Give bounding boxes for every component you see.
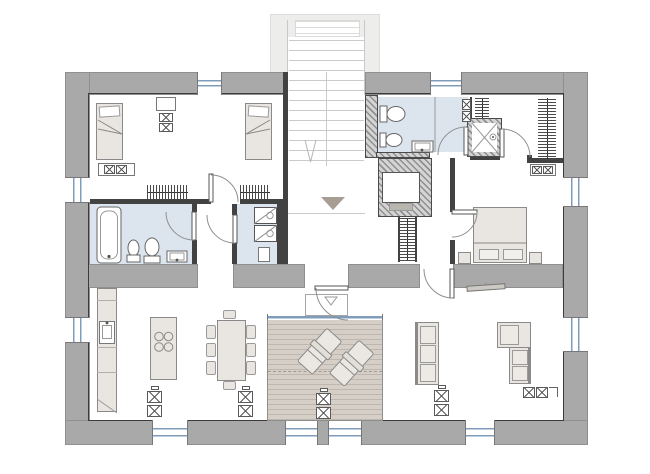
side-bracket [549, 387, 558, 397]
plant-stand-icon [434, 390, 449, 402]
dining-chair [246, 325, 256, 339]
partition-bath-east-lower [192, 240, 197, 264]
dining-table [217, 320, 246, 381]
kitchen-counter [97, 288, 117, 412]
pillow [503, 249, 523, 260]
window-right-living [563, 317, 588, 352]
bathroom-floor [90, 204, 192, 264]
wardrobe-rail-bedroom-left [147, 185, 188, 199]
exterior-wall-right [563, 72, 588, 445]
window-top-bathroom [430, 72, 462, 95]
exterior-wall-bottom [65, 420, 588, 445]
shower-tray [472, 123, 497, 152]
sofa-cushion [420, 326, 436, 344]
sofa-cushion [420, 345, 436, 363]
plant-stand-icon [316, 393, 331, 405]
dresser-box-icon [116, 165, 127, 174]
terrace-deck [267, 318, 383, 421]
entry-threshold [288, 213, 365, 214]
dining-chair [206, 343, 216, 357]
side-table-icon [523, 387, 535, 398]
fireplace-firebox [382, 172, 420, 203]
stand-tick [151, 386, 159, 390]
sofa-cushion [500, 325, 519, 345]
window-right-bedroom [563, 177, 588, 207]
cabinet-box-icon [532, 166, 542, 174]
plant-stand-icon [238, 405, 253, 417]
sofa-cushion [512, 350, 528, 365]
plant-stand-icon [238, 391, 253, 403]
coat-closet-wall-right [415, 217, 417, 262]
stand-tick [438, 385, 446, 389]
lamp-box-icon [159, 123, 173, 132]
glass-door-terrace-right [328, 420, 362, 445]
partition-laundry-east [277, 199, 288, 264]
window-top-bedroom [197, 72, 222, 95]
plant-stand-icon [434, 404, 449, 416]
exterior-wall-top-right [365, 72, 588, 95]
fireplace-hearth [389, 203, 413, 211]
counter-divider [97, 347, 117, 348]
cabinet-box-icon [543, 166, 553, 174]
exterior-wall-left [65, 72, 90, 445]
bath-shelf-box-icon [462, 99, 471, 110]
dining-chair [223, 310, 236, 319]
closet-rail-east [538, 98, 556, 160]
plant-stand-icon [147, 391, 162, 403]
washing-machine [254, 207, 277, 224]
kitchen-sink-basin [102, 325, 112, 339]
pillow [99, 105, 121, 117]
laundry-hatch [258, 247, 270, 262]
floor-plan [0, 0, 650, 474]
plant-stand-icon [316, 407, 331, 419]
doormat [305, 294, 348, 316]
stand-tick [242, 386, 250, 390]
sofa-cushion [512, 366, 528, 381]
partition-bedroom-west-upper [450, 158, 455, 212]
partition-laundry-west-upper [232, 204, 237, 215]
coat-rail [400, 218, 415, 261]
window-bottom-living [465, 420, 495, 445]
master-bathroom-floor [378, 97, 468, 152]
wardrobe-rail-bedroom-right [240, 185, 270, 199]
dry​er [254, 225, 277, 242]
stair-center-rail [326, 72, 327, 166]
window-left-bedroom [65, 177, 90, 203]
porch-landing-steps [295, 20, 360, 37]
dining-chair [246, 343, 256, 357]
window-left-kitchen [65, 317, 90, 343]
partition-laundry-west-lower [232, 243, 237, 264]
nightstand-left [458, 252, 471, 264]
partition-bedroom-west-lower [450, 240, 455, 264]
dining-chair [223, 381, 236, 390]
partition-bath-east-upper [192, 204, 197, 212]
bath-shelf-box-icon [462, 111, 471, 122]
flue-wall [365, 95, 378, 158]
counter-divider [97, 300, 117, 301]
plant-stand-icon [147, 405, 162, 417]
deck-joint-line [268, 371, 382, 372]
kitchen-island [150, 317, 177, 380]
side-table-icon [536, 387, 548, 398]
counter-divider [97, 372, 117, 373]
pillow [248, 105, 270, 117]
stair-jamb-right [364, 20, 365, 95]
shared-nightstand [156, 97, 176, 111]
sofa-cushion [420, 364, 436, 382]
window-bottom-dining [152, 420, 188, 445]
dining-chair [246, 361, 256, 375]
exterior-wall-top-left [65, 72, 285, 95]
pillow [479, 249, 499, 260]
lamp-box-icon [159, 113, 173, 122]
nightstand-right [529, 252, 542, 264]
dining-chair [206, 361, 216, 375]
stand-tick [320, 388, 328, 392]
glass-door-terrace-left [285, 420, 318, 445]
dresser-box-icon [104, 165, 115, 174]
dining-chair [206, 325, 216, 339]
